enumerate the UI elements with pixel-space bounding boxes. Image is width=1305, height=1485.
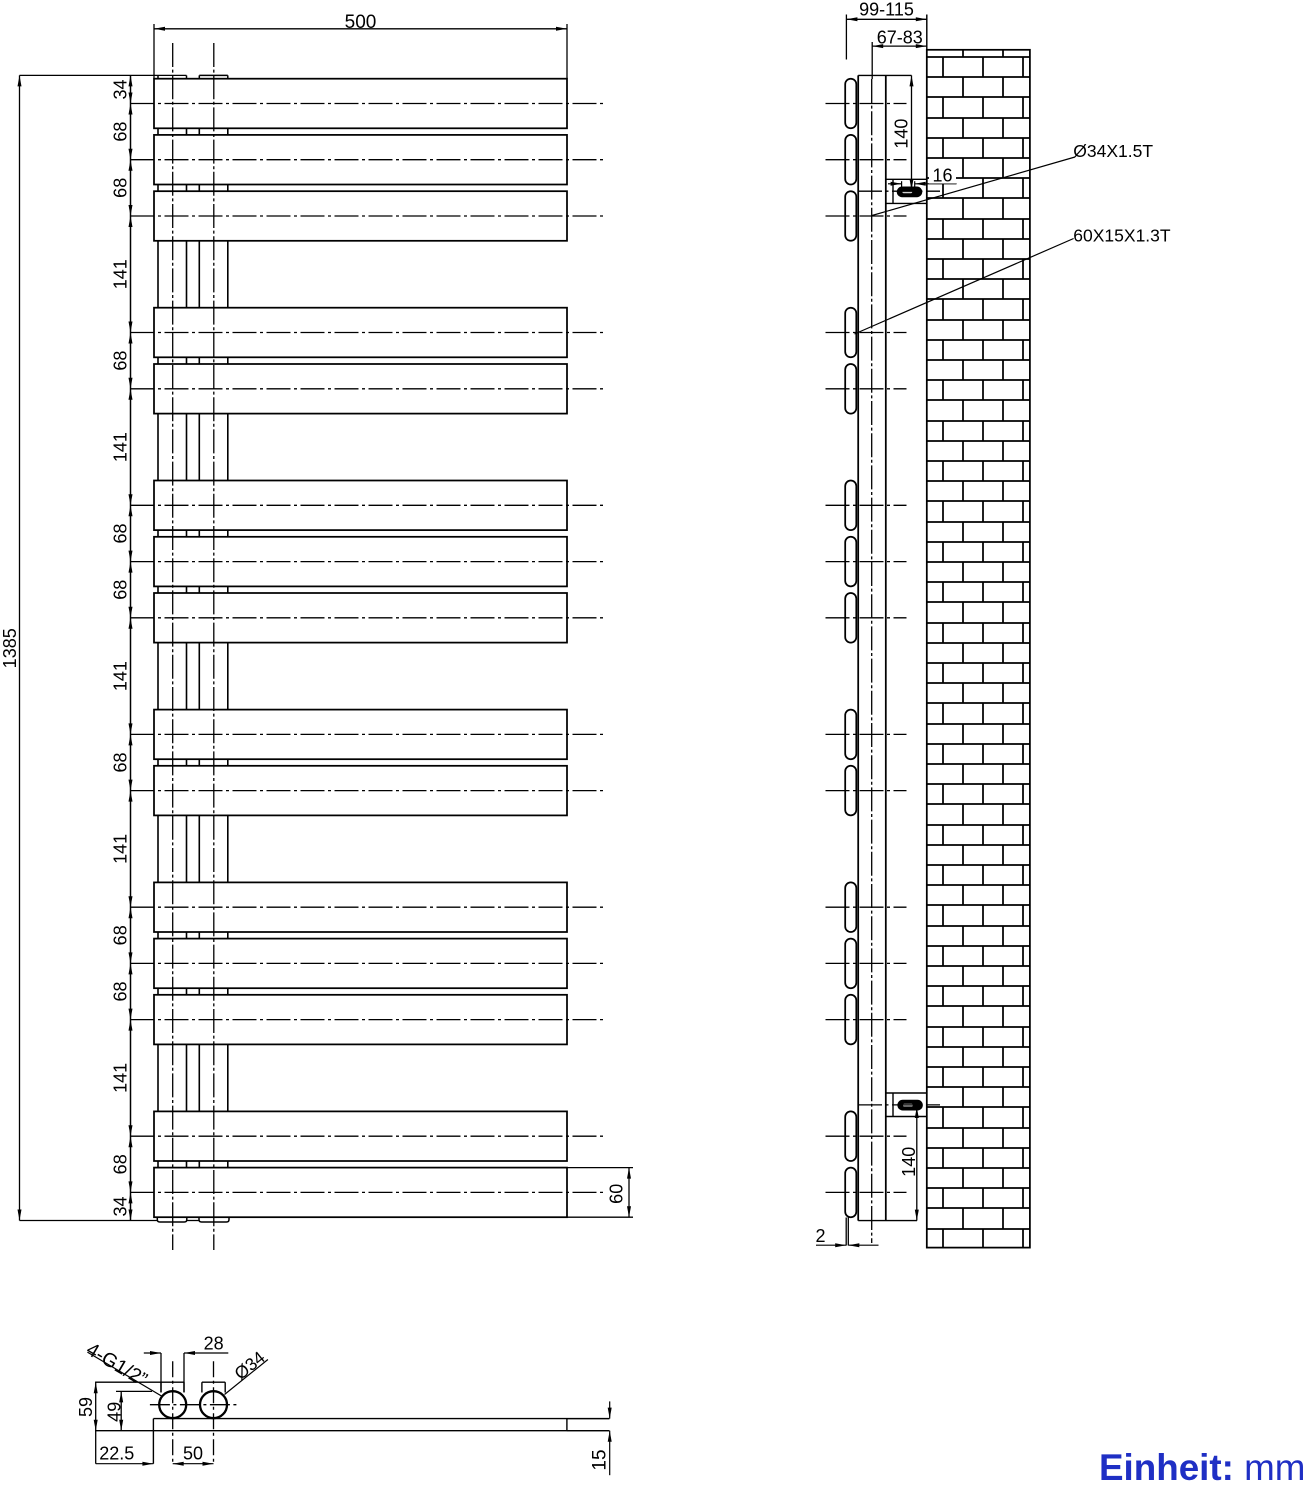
svg-text:141: 141 bbox=[111, 432, 131, 462]
svg-text:22.5: 22.5 bbox=[99, 1444, 134, 1464]
svg-text:68: 68 bbox=[111, 1154, 131, 1174]
svg-text:141: 141 bbox=[111, 834, 131, 864]
svg-text:60: 60 bbox=[607, 1184, 627, 1204]
svg-text:68: 68 bbox=[111, 122, 131, 142]
svg-text:141: 141 bbox=[111, 661, 131, 691]
svg-text:28: 28 bbox=[204, 1334, 224, 1354]
svg-text:67-83: 67-83 bbox=[877, 27, 923, 47]
svg-text:68: 68 bbox=[111, 178, 131, 198]
svg-text:4-G1/2”: 4-G1/2” bbox=[82, 1338, 150, 1391]
svg-text:Ø34: Ø34 bbox=[230, 1347, 269, 1384]
svg-text:Ø34X1.5T: Ø34X1.5T bbox=[1073, 141, 1153, 161]
svg-text:49: 49 bbox=[105, 1402, 125, 1422]
svg-text:60X15X1.3T: 60X15X1.3T bbox=[1073, 225, 1171, 245]
svg-text:68: 68 bbox=[111, 981, 131, 1001]
svg-text:34: 34 bbox=[111, 1196, 131, 1216]
svg-text:15: 15 bbox=[590, 1449, 611, 1470]
svg-text:34: 34 bbox=[111, 79, 131, 99]
svg-text:140: 140 bbox=[899, 1147, 919, 1177]
svg-text:Einheit: mm: Einheit: mm bbox=[1099, 1447, 1305, 1485]
svg-text:500: 500 bbox=[345, 12, 377, 33]
svg-text:68: 68 bbox=[111, 752, 131, 772]
svg-text:141: 141 bbox=[111, 1063, 131, 1093]
svg-text:68: 68 bbox=[111, 523, 131, 543]
svg-text:68: 68 bbox=[111, 580, 131, 600]
svg-text:16: 16 bbox=[932, 166, 952, 186]
svg-text:99-115: 99-115 bbox=[859, 0, 914, 20]
svg-text:50: 50 bbox=[183, 1444, 203, 1464]
svg-text:68: 68 bbox=[111, 351, 131, 371]
svg-text:141: 141 bbox=[111, 259, 131, 289]
svg-text:1385: 1385 bbox=[0, 628, 20, 668]
svg-text:59: 59 bbox=[76, 1397, 96, 1417]
svg-text:68: 68 bbox=[111, 925, 131, 945]
svg-text:140: 140 bbox=[892, 119, 912, 149]
svg-text:2: 2 bbox=[815, 1226, 825, 1246]
